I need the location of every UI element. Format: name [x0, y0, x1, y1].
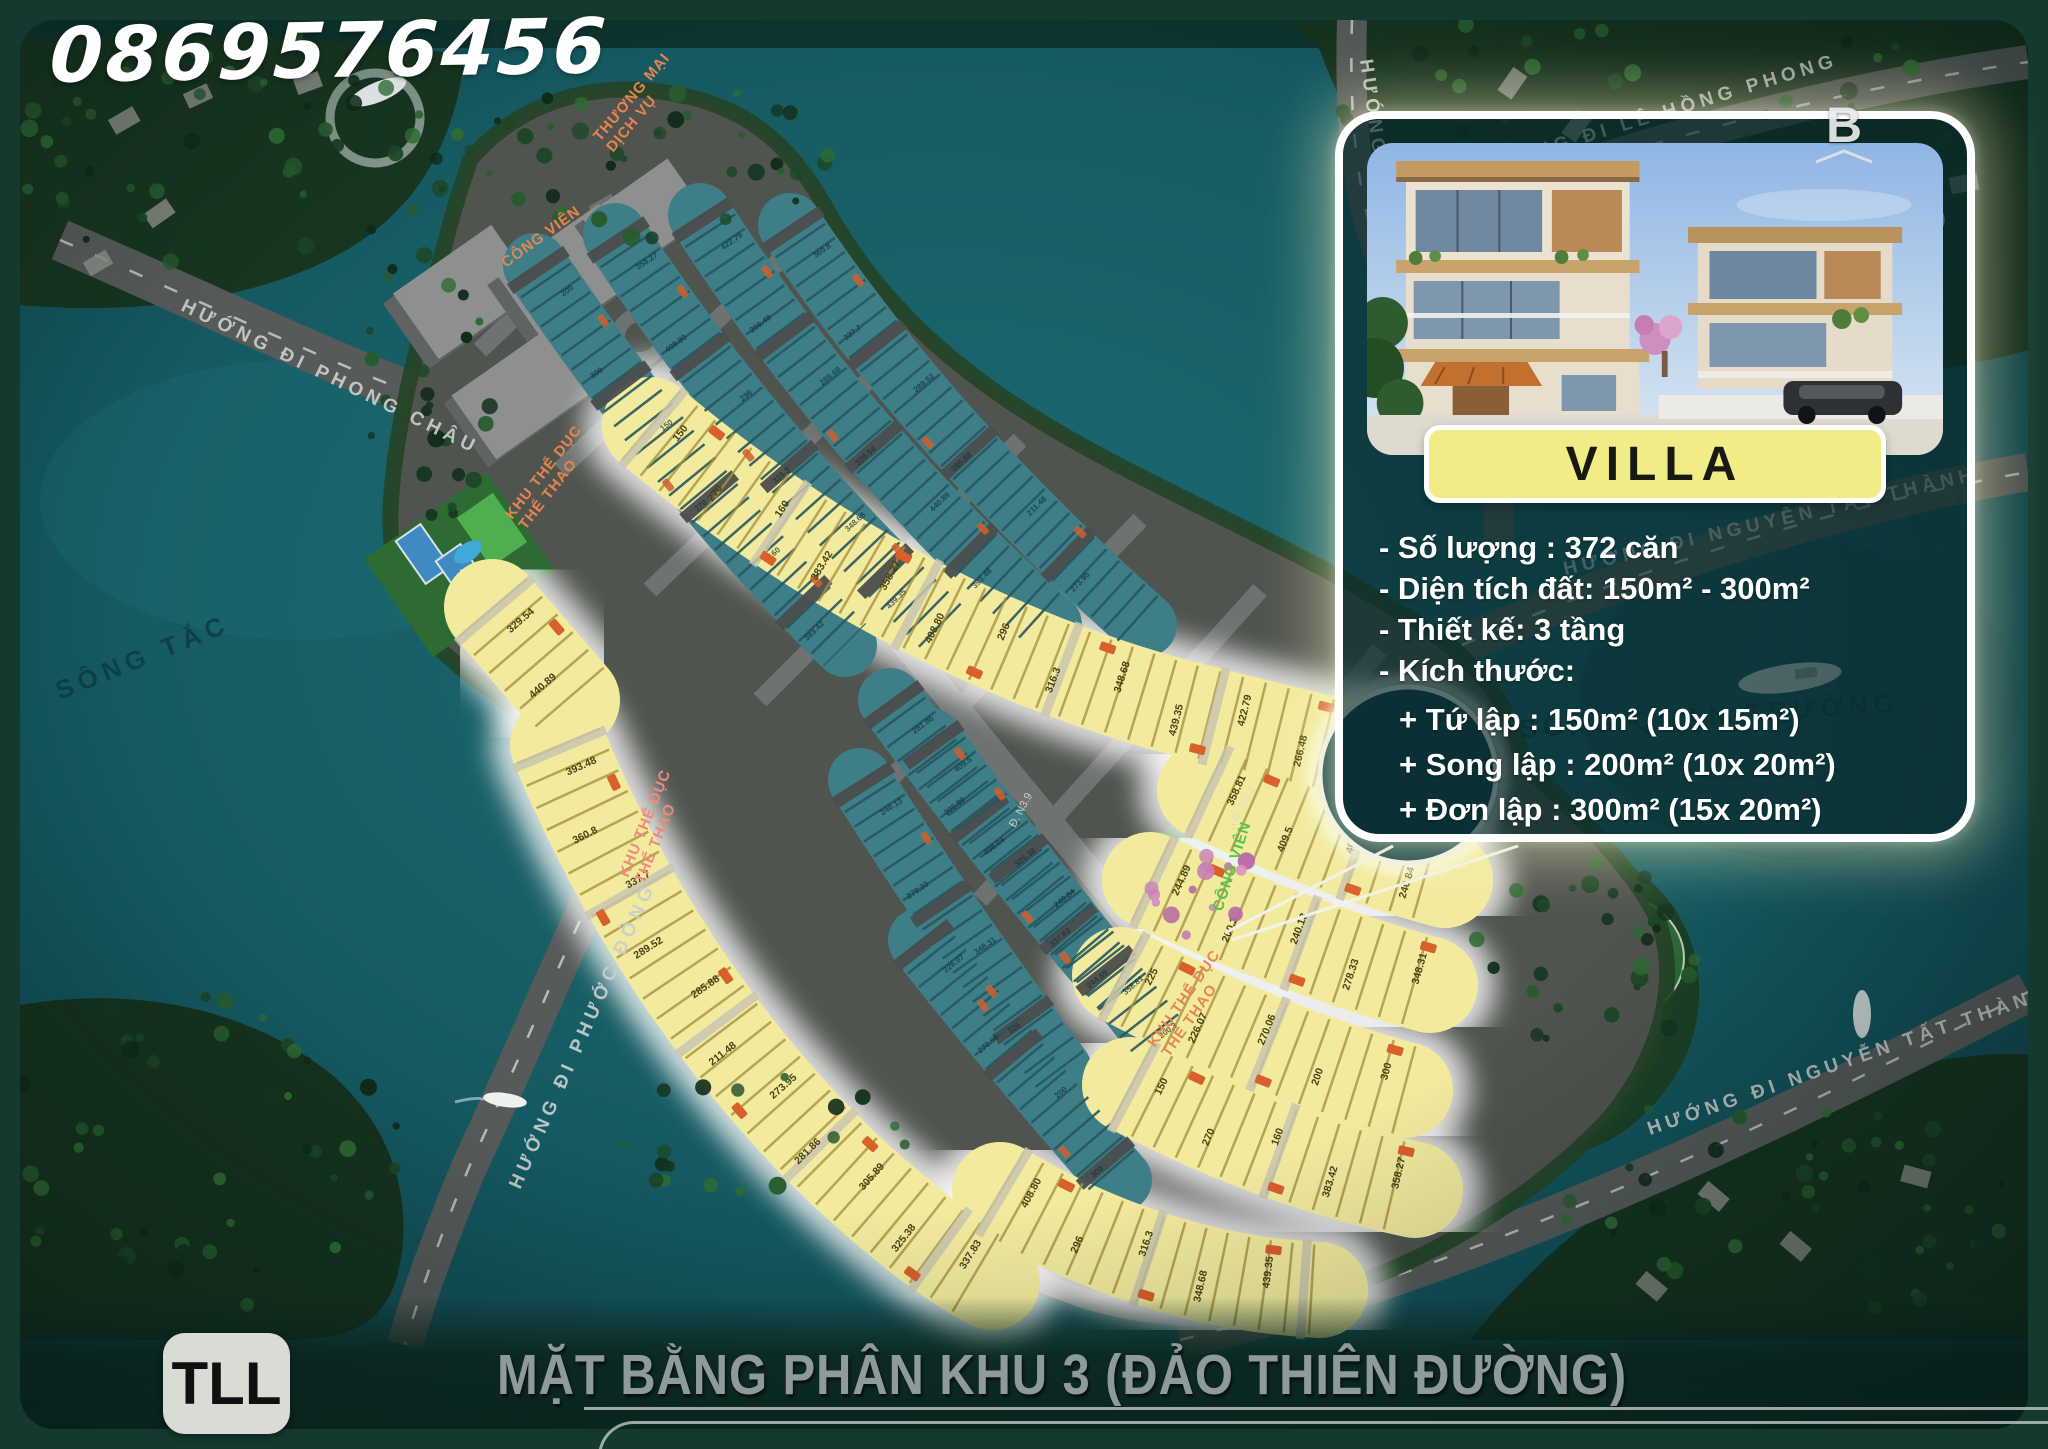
villa-illustration — [1367, 143, 1943, 455]
villa-banner: VILLA — [1424, 425, 1886, 503]
villa-specs-list: - Số lượng : 372 căn - Diện tích đất: 15… — [1379, 527, 1947, 832]
compass-north: B — [1812, 96, 1876, 164]
villa-banner-label: VILLA — [1566, 437, 1745, 492]
brochure-page: 200300150270160383.42358.27408.80296316.… — [0, 0, 2048, 1449]
compass-north-chevron — [1812, 148, 1876, 164]
footer-divider — [584, 1407, 2048, 1410]
size-line: + Đơn lập : 300m² (15x 20m²) — [1379, 787, 1947, 832]
brand-badge: TLL — [163, 1333, 290, 1434]
spec-line: - Kích thước: — [1379, 650, 1947, 691]
villa-info-card: VILLA - Số lượng : 372 căn - Diện tích đ… — [1335, 111, 1975, 842]
phone-number: 0869576456 — [48, 1, 611, 100]
spec-line: - Thiết kế: 3 tầng — [1379, 609, 1947, 650]
size-line: + Tứ lập : 150m² (10x 15m²) — [1379, 697, 1947, 742]
size-line: + Song lập : 200m² (10x 20m²) — [1379, 742, 1947, 787]
next-panel-corner — [598, 1421, 2048, 1449]
villa-render-image — [1367, 143, 1943, 455]
page-title: MẶT BẰNG PHÂN KHU 3 (ĐẢO THIÊN ĐƯỜNG) — [181, 1342, 1942, 1408]
spec-line: - Diện tích đất: 150m² - 300m² — [1379, 568, 1947, 609]
spec-line: - Số lượng : 372 căn — [1379, 527, 1947, 568]
